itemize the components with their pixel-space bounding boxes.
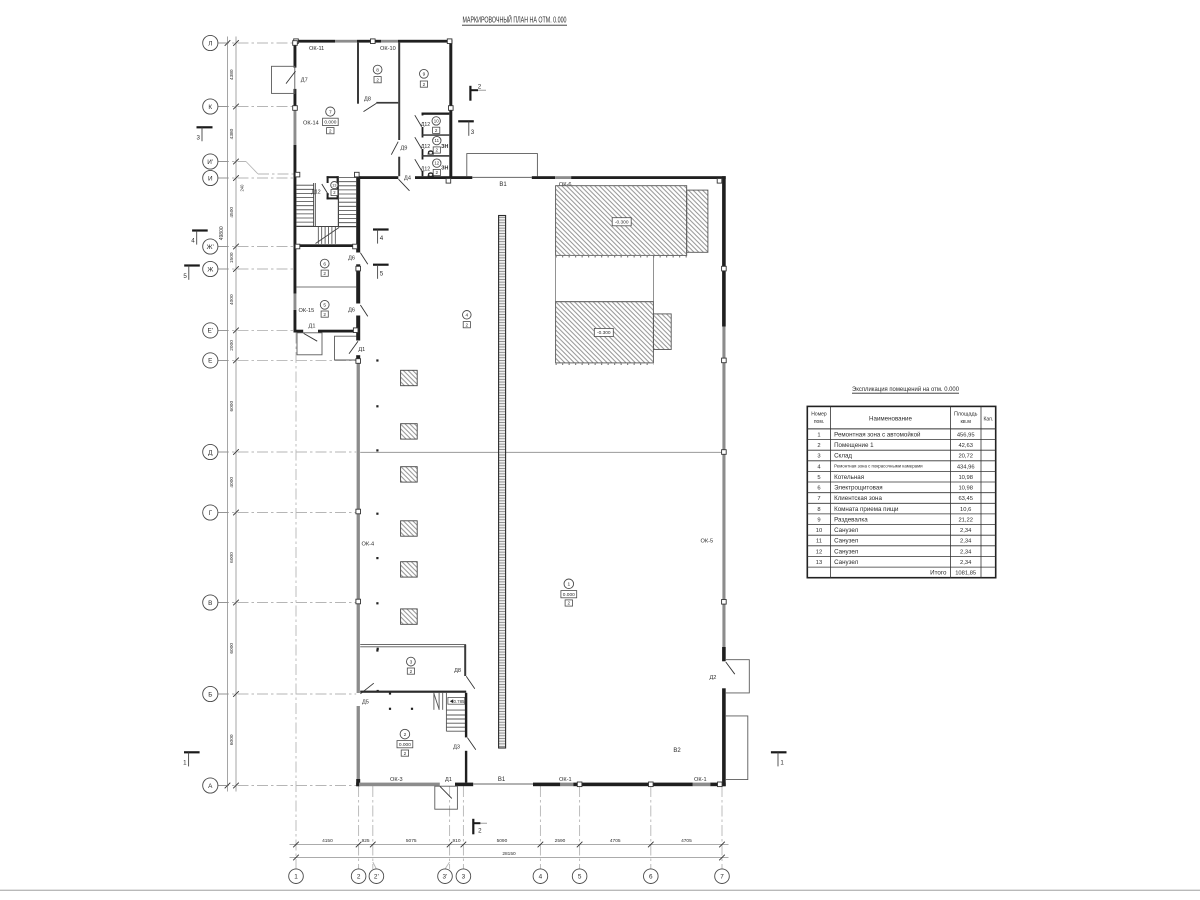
svg-text:0.000: 0.000 xyxy=(399,742,411,748)
svg-text:5075: 5075 xyxy=(406,838,417,844)
svg-text:3: 3 xyxy=(471,129,475,136)
svg-text:3’: 3’ xyxy=(443,874,449,881)
svg-text:В1: В1 xyxy=(498,777,506,783)
svg-text:Д12: Д12 xyxy=(311,189,320,195)
svg-text:5: 5 xyxy=(380,270,384,277)
svg-text:0.000: 0.000 xyxy=(324,120,336,126)
svg-text:В1: В1 xyxy=(499,182,507,188)
svg-text:3: 3 xyxy=(197,134,201,141)
svg-text:ОК-1: ОК-1 xyxy=(559,777,572,783)
svg-text:ОК-5: ОК-5 xyxy=(701,539,714,545)
svg-text:7: 7 xyxy=(720,874,724,881)
svg-text:ОК-4: ОК-4 xyxy=(362,542,375,548)
svg-text:4: 4 xyxy=(191,238,195,245)
svg-text:5090: 5090 xyxy=(497,838,508,844)
svg-text:Д8: Д8 xyxy=(364,97,371,103)
svg-text:6000: 6000 xyxy=(229,643,235,654)
svg-text:5: 5 xyxy=(578,874,582,881)
svg-text:К: К xyxy=(208,104,212,111)
svg-text:2,34: 2,34 xyxy=(960,560,972,566)
svg-text:1: 1 xyxy=(183,759,187,766)
svg-text:11: 11 xyxy=(435,138,440,143)
svg-text:8: 8 xyxy=(817,507,820,513)
svg-text:ОК-10: ОК-10 xyxy=(380,46,396,52)
svg-text:Д6: Д6 xyxy=(348,307,355,313)
svg-text:10,98: 10,98 xyxy=(958,486,973,492)
svg-text:Б: Б xyxy=(208,691,212,698)
svg-text:1081,85: 1081,85 xyxy=(955,571,976,577)
svg-text:2’: 2’ xyxy=(374,874,380,881)
svg-text:Раздевалка: Раздевалка xyxy=(834,517,868,524)
svg-text:2: 2 xyxy=(423,82,426,87)
svg-text:5: 5 xyxy=(323,303,326,309)
svg-text:12: 12 xyxy=(816,549,822,555)
svg-text:ОК-3: ОК-3 xyxy=(390,777,403,783)
svg-text:Ж: Ж xyxy=(207,266,213,273)
svg-text:Ремонтная зона с покрасочными: Ремонтная зона с покрасочными камерами xyxy=(834,464,923,469)
svg-text:Д12: Д12 xyxy=(421,144,430,150)
svg-text:Площадь: Площадь xyxy=(954,412,978,418)
svg-text:Комната приема пищи: Комната приема пищи xyxy=(834,506,899,513)
svg-text:10,6: 10,6 xyxy=(960,507,971,513)
svg-text:В: В xyxy=(208,600,212,607)
svg-text:-0.300: -0.300 xyxy=(597,330,611,336)
svg-text:2,34: 2,34 xyxy=(960,549,972,555)
svg-text:3: 3 xyxy=(462,874,466,881)
svg-text:20,72: 20,72 xyxy=(958,454,973,460)
svg-text:1500: 1500 xyxy=(229,252,235,263)
svg-text:Д12: Д12 xyxy=(421,166,430,172)
svg-text:Д8: Д8 xyxy=(454,668,461,674)
svg-text:2: 2 xyxy=(436,148,439,153)
svg-text:4500: 4500 xyxy=(229,207,235,218)
svg-text:Ремонтная зона с автомойкой: Ремонтная зона с автомойкой xyxy=(834,431,921,438)
svg-text:ОК-1: ОК-1 xyxy=(694,777,707,783)
svg-text:И: И xyxy=(208,175,213,182)
svg-text:4000: 4000 xyxy=(229,294,235,305)
svg-text:2: 2 xyxy=(466,322,469,327)
svg-text:4: 4 xyxy=(539,874,543,881)
svg-text:И’: И’ xyxy=(207,159,214,166)
svg-text:4: 4 xyxy=(380,235,384,242)
svg-text:2: 2 xyxy=(568,601,571,606)
svg-text:1: 1 xyxy=(294,874,298,881)
svg-text:6: 6 xyxy=(323,261,326,267)
svg-text:12: 12 xyxy=(434,161,439,166)
svg-text:Итого: Итого xyxy=(930,570,947,577)
svg-text:2: 2 xyxy=(436,170,439,175)
svg-text:В2: В2 xyxy=(673,748,681,754)
svg-text:Экспликация помещений на отм.: Экспликация помещений на отм. 0.000 xyxy=(852,385,959,393)
svg-text:2: 2 xyxy=(329,128,332,133)
svg-text:5: 5 xyxy=(183,273,187,280)
svg-text:13: 13 xyxy=(816,560,822,566)
svg-text:1: 1 xyxy=(817,432,820,438)
svg-text:ОК-14: ОК-14 xyxy=(303,120,319,126)
svg-text:Ж’: Ж’ xyxy=(207,244,215,251)
svg-text:2: 2 xyxy=(817,443,820,449)
svg-text:4000: 4000 xyxy=(229,477,235,488)
svg-text:Л: Л xyxy=(208,40,212,47)
svg-text:28150: 28150 xyxy=(502,851,516,857)
svg-text:42,63: 42,63 xyxy=(958,443,973,449)
svg-text:9: 9 xyxy=(423,72,426,78)
svg-text:6: 6 xyxy=(817,486,820,492)
svg-text:240: 240 xyxy=(240,184,245,192)
svg-text:8: 8 xyxy=(376,67,379,73)
svg-text:1: 1 xyxy=(567,582,570,588)
svg-text:пом.: пом. xyxy=(814,419,824,425)
svg-text:ОК-11: ОК-11 xyxy=(309,46,324,52)
svg-text:Д12: Д12 xyxy=(421,122,430,128)
svg-text:ЗН: ЗН xyxy=(441,166,448,172)
svg-text:7: 7 xyxy=(817,496,820,502)
svg-text:11: 11 xyxy=(816,539,822,545)
svg-text:2: 2 xyxy=(376,77,379,82)
svg-text:6: 6 xyxy=(649,874,653,881)
svg-text:Д1: Д1 xyxy=(358,347,365,353)
svg-text:Г: Г xyxy=(209,510,213,517)
svg-text:4380: 4380 xyxy=(229,128,235,139)
svg-text:3: 3 xyxy=(817,454,820,460)
svg-text:А: А xyxy=(208,783,213,790)
svg-text:5: 5 xyxy=(817,475,820,481)
svg-text:2,34: 2,34 xyxy=(960,528,972,534)
svg-text:Д6: Д6 xyxy=(348,256,355,262)
svg-text:Д1: Д1 xyxy=(309,323,316,329)
svg-text:Кап.: Кап. xyxy=(984,417,994,423)
svg-text:Д2: Д2 xyxy=(710,675,717,681)
svg-text:Санузел: Санузел xyxy=(834,527,858,534)
svg-text:2: 2 xyxy=(478,827,482,834)
svg-text:10: 10 xyxy=(816,528,822,534)
svg-text:ОК-15: ОК-15 xyxy=(299,308,315,314)
svg-text:4705: 4705 xyxy=(681,838,692,844)
svg-text:Помещение 1: Помещение 1 xyxy=(834,442,874,449)
svg-text:4705: 4705 xyxy=(610,838,621,844)
svg-text:3: 3 xyxy=(410,659,413,665)
svg-text:10,98: 10,98 xyxy=(958,475,973,481)
svg-text:Д9: Д9 xyxy=(401,146,408,152)
svg-text:21,22: 21,22 xyxy=(958,518,973,524)
svg-text:Наименование: Наименование xyxy=(869,416,912,423)
svg-text:2: 2 xyxy=(404,751,407,756)
svg-text:4150: 4150 xyxy=(322,838,333,844)
svg-text:2: 2 xyxy=(410,669,413,674)
svg-text:Клиентская зона: Клиентская зона xyxy=(834,495,882,502)
svg-text:910: 910 xyxy=(452,838,460,844)
svg-text:63,45: 63,45 xyxy=(958,496,973,502)
svg-text:2: 2 xyxy=(323,271,326,276)
svg-text:0.785: 0.785 xyxy=(454,699,466,704)
svg-text:2000: 2000 xyxy=(229,340,235,351)
svg-text:Д4: Д4 xyxy=(404,176,411,182)
svg-text:Д: Д xyxy=(208,449,213,456)
svg-text:Е’: Е’ xyxy=(207,328,213,335)
svg-text:456,95: 456,95 xyxy=(957,432,975,438)
svg-text:434,96: 434,96 xyxy=(957,464,975,470)
svg-text:Номер: Номер xyxy=(811,412,827,418)
svg-text:2: 2 xyxy=(404,732,407,738)
svg-text:Д3: Д3 xyxy=(453,745,460,751)
svg-text:2590: 2590 xyxy=(555,838,566,844)
svg-text:9: 9 xyxy=(817,518,820,524)
svg-text:13: 13 xyxy=(332,183,337,188)
svg-text:0.000: 0.000 xyxy=(563,592,575,598)
svg-text:4: 4 xyxy=(465,313,468,319)
svg-text:кв.м: кв.м xyxy=(960,419,971,425)
svg-text:2: 2 xyxy=(478,83,482,90)
svg-text:Санузел: Санузел xyxy=(834,548,858,555)
svg-text:2: 2 xyxy=(357,874,361,881)
svg-text:2: 2 xyxy=(435,128,438,133)
svg-text:1: 1 xyxy=(780,759,784,766)
svg-text:ЗН: ЗН xyxy=(441,144,448,150)
svg-text:Е: Е xyxy=(208,358,212,365)
svg-text:2: 2 xyxy=(323,312,326,317)
svg-text:6000: 6000 xyxy=(229,401,235,412)
svg-text:4380: 4380 xyxy=(229,69,235,80)
svg-text:7: 7 xyxy=(329,109,332,115)
svg-text:49800: 49800 xyxy=(219,226,225,240)
svg-text:Санузел: Санузел xyxy=(834,559,858,566)
svg-text:Электрощитовая: Электрощитовая xyxy=(834,485,883,492)
svg-text:МАРКИРОВОЧНЫЙ ПЛАН НА ОТМ. 0.0: МАРКИРОВОЧНЫЙ ПЛАН НА ОТМ. 0.000 xyxy=(463,16,567,25)
svg-text:Санузел: Санузел xyxy=(834,538,858,545)
svg-text:Д5: Д5 xyxy=(362,700,369,706)
svg-text:Склад: Склад xyxy=(834,453,852,460)
svg-text:-0.300: -0.300 xyxy=(615,220,629,226)
svg-text:925: 925 xyxy=(362,838,370,844)
svg-text:10: 10 xyxy=(434,119,439,124)
svg-text:6000: 6000 xyxy=(229,734,235,745)
svg-text:Д1: Д1 xyxy=(445,777,452,783)
svg-text:Д7: Д7 xyxy=(301,77,308,83)
svg-text:2,34: 2,34 xyxy=(960,539,972,545)
svg-text:6000: 6000 xyxy=(229,552,235,563)
svg-text:Котельная: Котельная xyxy=(834,474,864,481)
